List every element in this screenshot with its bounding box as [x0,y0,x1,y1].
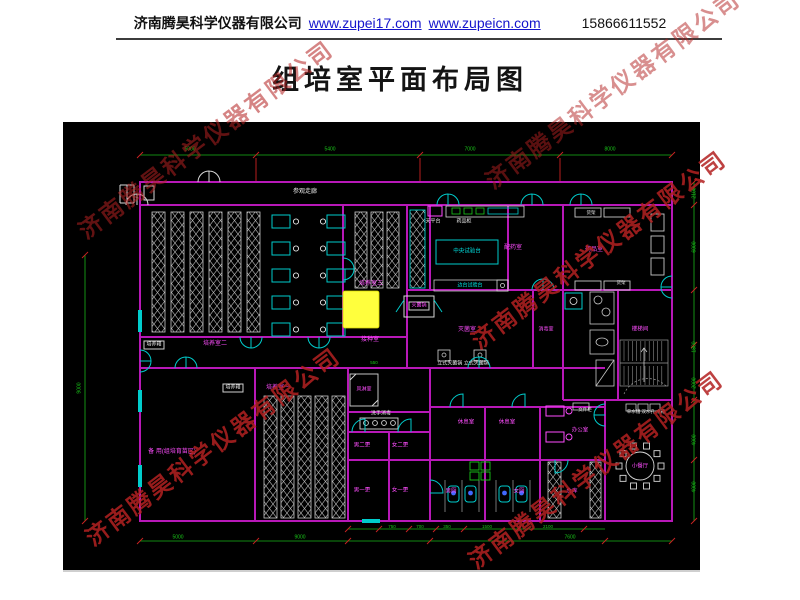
sterilizer-fixtures [396,293,582,361]
page-title: 组培室平面布局图 [0,58,800,97]
company-name: 济南腾昊科学仪器有限公司 [134,13,302,33]
office-furniture [546,403,589,442]
header-divider [116,38,722,40]
reagent-rack [410,210,425,288]
page: 济南腾昊科学仪器有限公司 www.zupei17.com www.zupeicn… [0,0,800,600]
clean-benches [272,215,345,336]
prep-room-fixtures [428,206,524,291]
staircase [620,340,668,394]
yellow-highlight [343,291,379,328]
header: 济南腾昊科学仪器有限公司 www.zupei17.com www.zupeicn… [0,13,800,33]
link-zupeicn[interactable]: www.zupeicn.com [429,15,541,31]
storage-shelves [575,208,664,290]
toilet-fixtures [445,462,530,512]
link-zupei17[interactable]: www.zupei17.com [309,15,422,31]
air-shower [350,374,398,429]
floorplan-drawing [63,122,700,572]
dining-table [616,443,664,489]
kitchen-fixtures [590,292,660,411]
floorplan-svg [63,122,700,570]
phone-number: 15866611552 [582,15,667,31]
